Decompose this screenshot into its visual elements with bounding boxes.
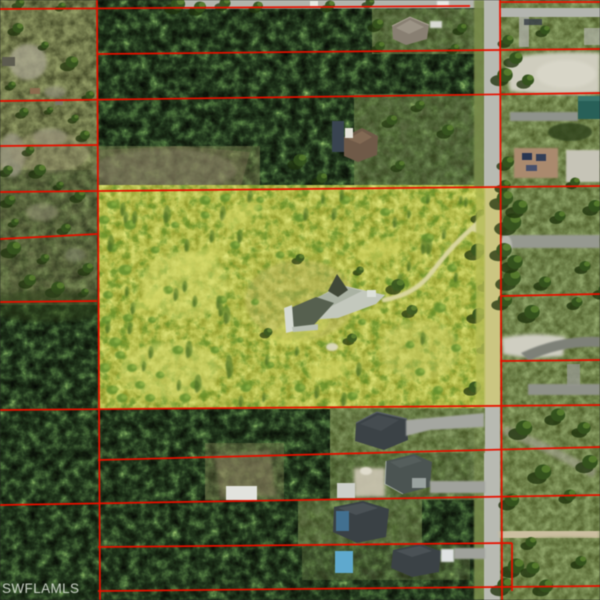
svg-text:SWFLAMLS: SWFLAMLS bbox=[2, 581, 79, 596]
